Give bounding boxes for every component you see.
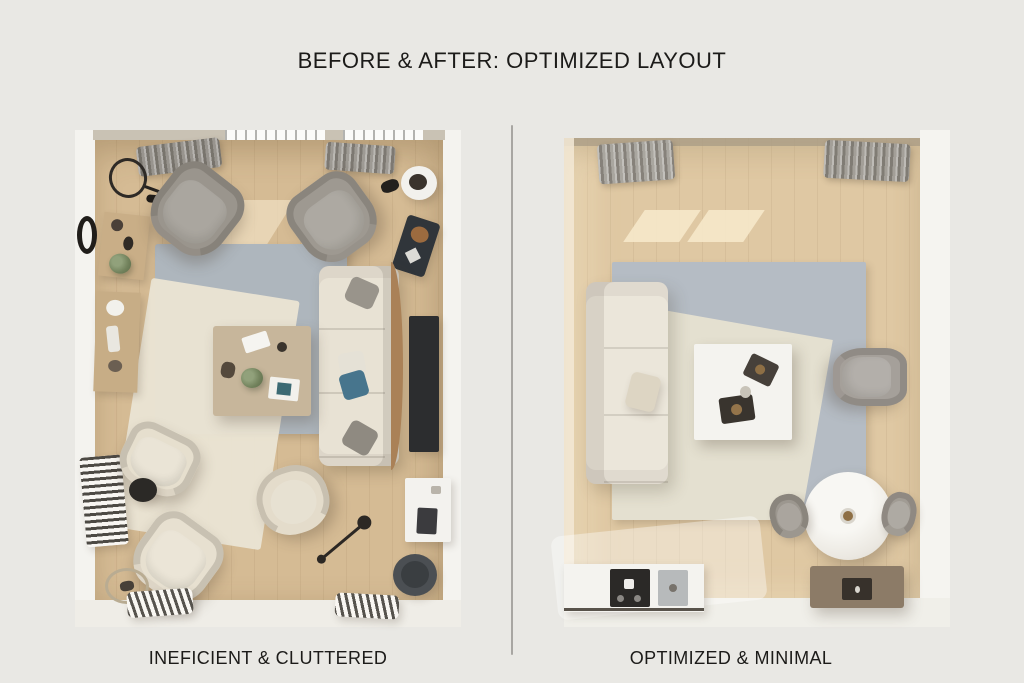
counter-edge: [564, 608, 704, 611]
wall-clock: [77, 216, 97, 254]
decor-gold: [730, 403, 742, 415]
plant: [108, 253, 132, 275]
decor-vase-small: [740, 386, 751, 398]
cooktop-knob: [634, 595, 641, 602]
office-chair-seat: [401, 561, 429, 588]
decor-book-art: [268, 376, 300, 401]
decor-candle: [106, 325, 121, 352]
console-front-panel: [842, 578, 872, 600]
curtain: [597, 139, 676, 184]
decor-bottle: [123, 236, 134, 251]
coffee-table: [213, 326, 311, 416]
tv-panel: [409, 316, 439, 452]
floorplan-after: [564, 130, 950, 627]
decor-tray-dark: [742, 353, 779, 388]
caption-after: OPTIMIZED & MINIMAL: [538, 646, 924, 670]
wall-right: [920, 130, 950, 600]
plant-small: [241, 368, 263, 388]
console-table: [93, 291, 140, 392]
caption-before: INEFICIENT & CLUTTERED: [75, 646, 461, 670]
armchair: [833, 348, 907, 406]
window-strip: [225, 130, 325, 140]
sofa: [319, 266, 399, 466]
decor-hat: [409, 174, 427, 190]
decor-gold: [753, 363, 766, 376]
cooktop-knob: [617, 595, 624, 602]
curtain: [324, 142, 396, 175]
office-chair: [393, 554, 437, 596]
decor-cup: [277, 342, 287, 352]
pillow-gray: [340, 418, 380, 457]
faucet: [669, 584, 677, 592]
decor-flowers: [106, 300, 125, 317]
side-table-black: [129, 478, 157, 502]
decor-white-triangle: [405, 247, 421, 263]
window-strip: [343, 130, 423, 140]
page-title: BEFORE & AFTER: OPTIMIZED LAYOUT: [0, 48, 1024, 74]
sink: [658, 570, 688, 606]
pillow-gray: [343, 275, 381, 311]
side-table-plant: [98, 212, 150, 280]
decor-brass: [843, 511, 853, 521]
laptop: [416, 507, 437, 534]
curtain: [823, 140, 911, 182]
textile-pile: [334, 592, 399, 619]
dining-table: [804, 472, 892, 560]
floorplan-before: [75, 130, 461, 627]
decor-book: [241, 330, 271, 353]
comparison-stage: BEFORE & AFTER: OPTIMIZED LAYOUT INEFICI…: [0, 0, 1024, 683]
media-console: [810, 566, 904, 608]
decor-art: [276, 382, 291, 395]
desk: [405, 478, 451, 542]
cooktop-center: [624, 579, 634, 589]
pillow: [624, 371, 662, 413]
desk-item: [431, 486, 441, 494]
light-edge: [564, 138, 574, 600]
decor-gold-plate: [409, 224, 431, 245]
decor-items: [119, 580, 135, 592]
sofa: [586, 282, 668, 484]
console-knob: [855, 586, 860, 593]
decor-vase: [111, 219, 124, 232]
coffee-table: [694, 344, 792, 440]
kitchen-counter: [564, 564, 704, 612]
divider-line: [511, 125, 513, 655]
side-table-round: [401, 166, 437, 200]
decor-bowl: [108, 360, 122, 372]
cooktop: [610, 569, 650, 607]
decor-tray-dark: [718, 394, 755, 424]
textile-pile: [126, 588, 194, 619]
pillow-teal: [338, 369, 370, 401]
decor-bowl-dark: [220, 361, 237, 379]
